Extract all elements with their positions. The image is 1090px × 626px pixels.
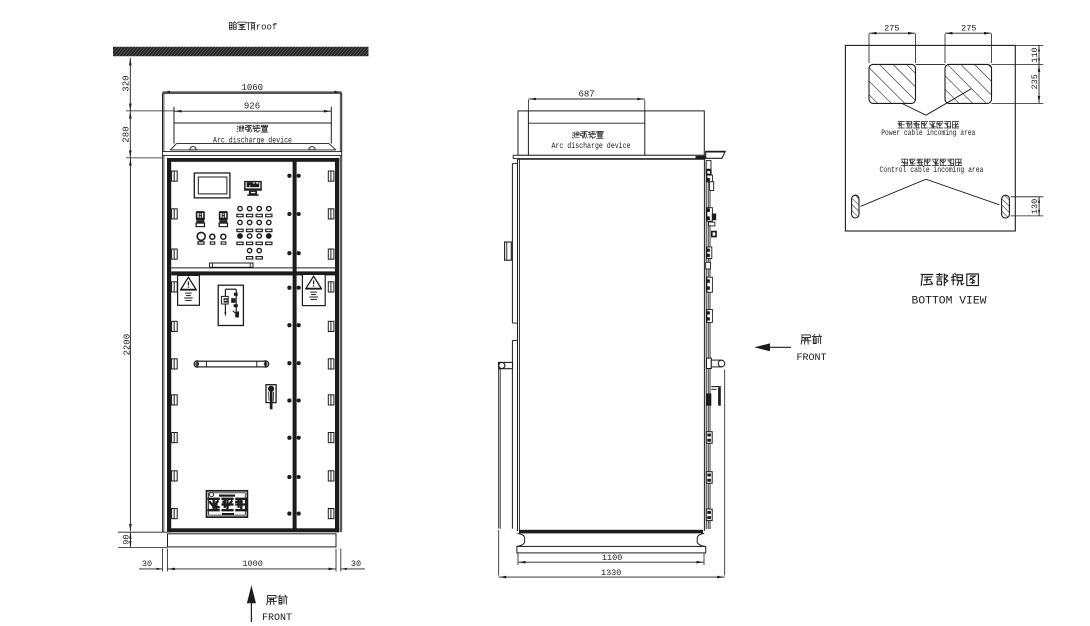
svg-text:Arc discharge device: Arc discharge device xyxy=(552,143,631,151)
svg-text:687: 687 xyxy=(578,90,594,100)
svg-text:926: 926 xyxy=(244,102,260,112)
svg-text:Power cable incoming area: Power cable incoming area xyxy=(881,130,975,138)
svg-text:90: 90 xyxy=(122,534,132,544)
svg-text:275: 275 xyxy=(884,24,899,34)
svg-text:Arc discharge device: Arc discharge device xyxy=(213,137,292,145)
svg-text:1100: 1100 xyxy=(602,553,622,563)
svg-text:roof: roof xyxy=(256,23,278,33)
svg-text:235: 235 xyxy=(1030,74,1040,89)
svg-text:275: 275 xyxy=(961,24,976,34)
svg-text:110: 110 xyxy=(1030,47,1040,62)
svg-text:280: 280 xyxy=(122,126,132,142)
svg-text:130: 130 xyxy=(1030,199,1040,214)
svg-text:Control cable incoming area: Control cable incoming area xyxy=(880,167,984,175)
svg-text:30: 30 xyxy=(351,559,361,569)
svg-text:BOTTOM VIEW: BOTTOM VIEW xyxy=(912,296,987,308)
svg-text:1000: 1000 xyxy=(242,559,262,569)
svg-text:1330: 1330 xyxy=(601,568,621,578)
svg-text:2200: 2200 xyxy=(122,334,132,356)
svg-text:FRONT: FRONT xyxy=(796,353,826,364)
svg-text:320: 320 xyxy=(121,75,131,91)
svg-text:1060: 1060 xyxy=(241,83,263,93)
svg-text:30: 30 xyxy=(142,559,152,569)
svg-text:FRONT: FRONT xyxy=(262,613,292,624)
